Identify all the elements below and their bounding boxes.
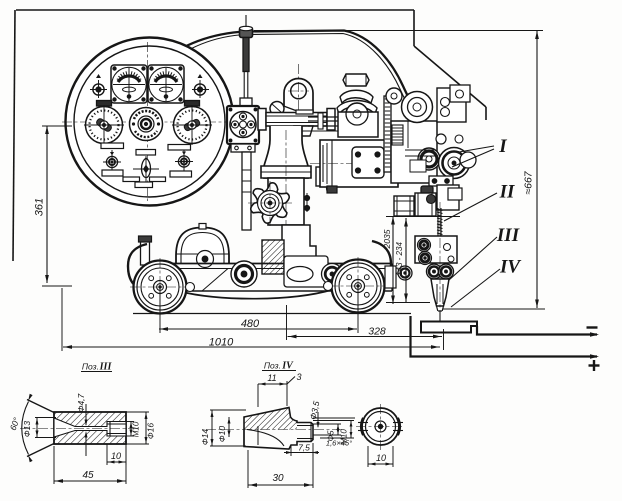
- svg-text:Ф10: Ф10: [217, 426, 227, 442]
- svg-text:10: 10: [111, 451, 121, 461]
- svg-text:7,5: 7,5: [298, 443, 310, 453]
- svg-text:2035: 2035: [382, 229, 392, 249]
- svg-text:М10: М10: [132, 421, 141, 437]
- svg-text:III: III: [496, 225, 520, 246]
- svg-text:Ф14: Ф14: [200, 429, 210, 445]
- svg-text:143 - 234: 143 - 234: [395, 242, 404, 276]
- svg-text:IV: IV: [499, 257, 521, 278]
- svg-text:1,6×45°: 1,6×45°: [326, 439, 352, 448]
- svg-text:I: I: [498, 136, 507, 157]
- svg-text:328: 328: [368, 326, 386, 338]
- svg-text:361: 361: [34, 198, 46, 216]
- svg-text:11: 11: [267, 373, 276, 383]
- svg-text:30: 30: [272, 473, 284, 484]
- svg-text:Ф16: Ф16: [146, 423, 156, 439]
- svg-text:≈667: ≈667: [523, 170, 535, 194]
- svg-text:II: II: [499, 182, 515, 203]
- svg-text:10: 10: [376, 453, 386, 463]
- svg-text:III: III: [99, 362, 113, 373]
- svg-text:Поз.: Поз.: [82, 362, 99, 372]
- svg-text:IV: IV: [281, 361, 294, 372]
- svg-text:Ф13: Ф13: [22, 421, 32, 437]
- svg-text:1010: 1010: [209, 337, 234, 349]
- svg-text:45: 45: [82, 470, 94, 481]
- svg-text:Поз.: Поз.: [264, 361, 281, 371]
- svg-text:Ф4,7: Ф4,7: [76, 393, 86, 412]
- svg-text:480: 480: [241, 318, 260, 330]
- svg-text:3: 3: [296, 372, 301, 382]
